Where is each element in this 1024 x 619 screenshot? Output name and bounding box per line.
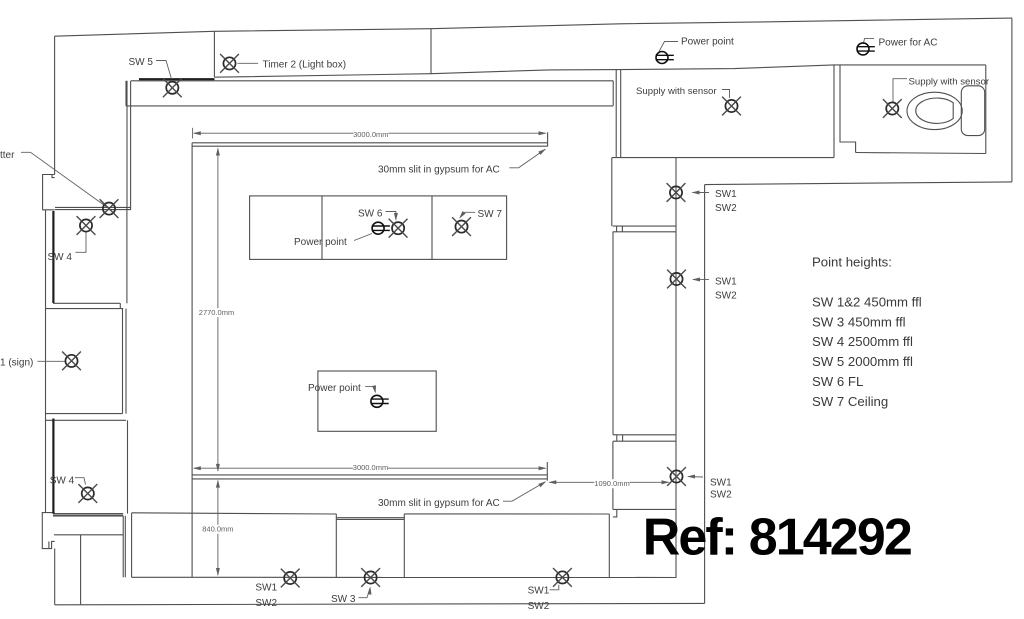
svg-text:SW 5: SW 5	[129, 57, 154, 68]
svg-text:3000.0mm: 3000.0mm	[353, 463, 388, 472]
svg-text:2770.0mm: 2770.0mm	[199, 308, 234, 317]
svg-text:SW2: SW2	[528, 601, 550, 612]
svg-text:SW2: SW2	[255, 598, 277, 609]
svg-text:SW 6 FL: SW 6 FL	[812, 374, 863, 389]
svg-text:SW1: SW1	[255, 582, 277, 593]
svg-text:840.0mm: 840.0mm	[202, 525, 233, 534]
svg-text:Power point: Power point	[681, 36, 734, 47]
svg-text:Power for AC: Power for AC	[879, 37, 938, 48]
svg-text:Ref: 814292: Ref: 814292	[643, 509, 911, 567]
svg-text:SW1: SW1	[715, 189, 737, 200]
svg-text:SW 3 450mm ffl: SW 3 450mm ffl	[812, 314, 906, 329]
svg-text:SW 7: SW 7	[478, 209, 503, 220]
svg-text:3000.0mm: 3000.0mm	[353, 130, 388, 139]
svg-text:Supply with sensor: Supply with sensor	[909, 76, 990, 87]
svg-text:1090.0mm: 1090.0mm	[594, 479, 629, 488]
svg-text:SW 4: SW 4	[48, 252, 73, 263]
svg-text:Power point: Power point	[294, 237, 347, 248]
svg-text:SW 5 2000mm ffl: SW 5 2000mm ffl	[812, 354, 913, 369]
svg-text:SW 6: SW 6	[358, 208, 383, 219]
svg-text:SW1: SW1	[715, 276, 737, 287]
svg-text:Power point: Power point	[308, 383, 361, 394]
svg-text:Point heights:: Point heights:	[812, 255, 892, 270]
svg-text:SW 3: SW 3	[331, 594, 356, 605]
svg-text:SW 7 Ceiling: SW 7 Ceiling	[812, 394, 888, 409]
svg-text:SW2: SW2	[715, 290, 737, 301]
svg-text:tter: tter	[0, 150, 15, 161]
svg-text:30mm slit in gypsum for AC: 30mm slit in gypsum for AC	[378, 164, 500, 175]
svg-text:30mm slit in gypsum for AC: 30mm slit in gypsum for AC	[378, 498, 500, 509]
svg-text:SW 1&2 450mm ffl: SW 1&2 450mm ffl	[812, 295, 922, 310]
svg-text:Timer 2 (Light box): Timer 2 (Light box)	[263, 59, 347, 70]
svg-text:SW 4: SW 4	[50, 475, 75, 486]
svg-text:SW2: SW2	[715, 203, 737, 214]
svg-text:Supply with sensor: Supply with sensor	[636, 86, 717, 97]
svg-text:SW2: SW2	[710, 489, 732, 500]
svg-text:SW1: SW1	[528, 585, 550, 596]
svg-text:SW1: SW1	[710, 477, 732, 488]
svg-text:SW 4 2500mm ffl: SW 4 2500mm ffl	[812, 334, 913, 349]
svg-text:1 (sign): 1 (sign)	[0, 357, 33, 368]
